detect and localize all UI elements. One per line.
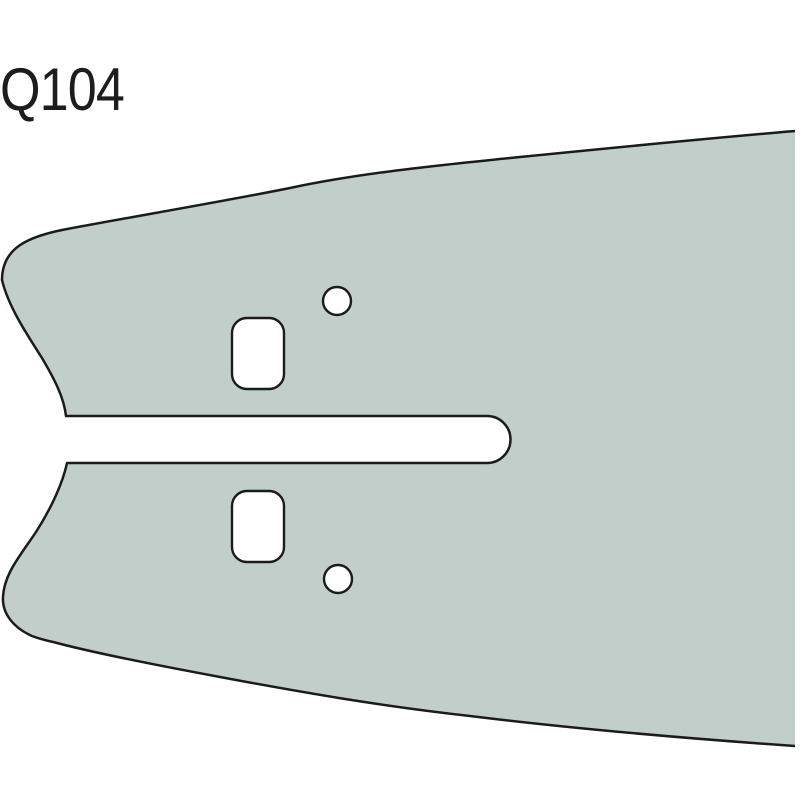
diagram-canvas: Q104 bbox=[0, 0, 800, 800]
upper-adjustment-hole bbox=[232, 318, 284, 389]
lower-oiler-hole bbox=[324, 565, 352, 593]
part-code-label: Q104 bbox=[0, 56, 124, 123]
lower-adjustment-hole bbox=[232, 491, 284, 562]
guide-bar-body bbox=[2, 131, 795, 746]
guide-bar-diagram: Q104 bbox=[0, 0, 800, 800]
upper-oiler-hole bbox=[323, 287, 351, 315]
